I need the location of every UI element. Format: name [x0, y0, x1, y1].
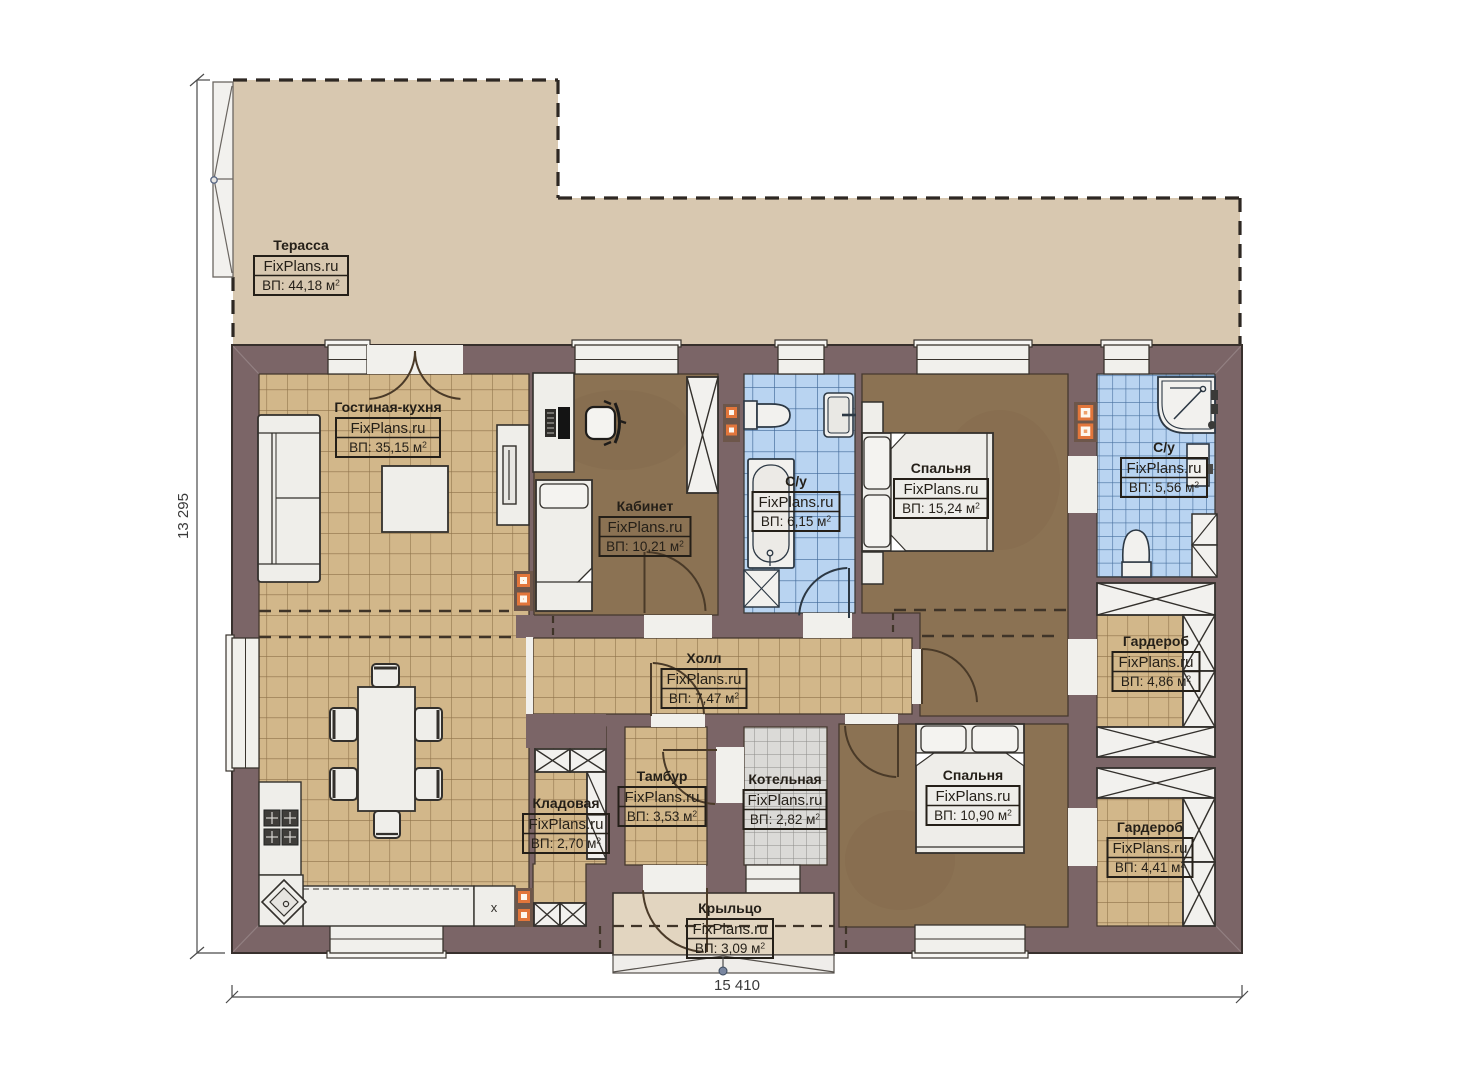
svg-text:FixPlans.ru: FixPlans.ru — [528, 816, 603, 833]
svg-text:Гардероб: Гардероб — [1123, 633, 1190, 649]
svg-text:ВП: 3,09 м2: ВП: 3,09 м2 — [695, 941, 766, 957]
svg-text:ВП: 3,53 м2: ВП: 3,53 м2 — [627, 809, 698, 825]
svg-text:FixPlans.ru: FixPlans.ru — [263, 258, 338, 275]
svg-text:ВП: 10,90 м2: ВП: 10,90 м2 — [934, 808, 1012, 824]
svg-text:FixPlans.ru: FixPlans.ru — [666, 671, 741, 688]
svg-text:ВП: 4,86 м2: ВП: 4,86 м2 — [1121, 674, 1192, 690]
svg-text:С/у: С/у — [1153, 439, 1175, 455]
svg-text:ВП: 5,56 м2: ВП: 5,56 м2 — [1129, 480, 1200, 496]
svg-text:Котельная: Котельная — [748, 771, 821, 787]
svg-text:Крыльцо: Крыльцо — [698, 900, 762, 916]
svg-text:Гардероб: Гардероб — [1117, 819, 1184, 835]
svg-text:ВП: 2,82 м2: ВП: 2,82 м2 — [750, 812, 821, 828]
svg-text:Спальня: Спальня — [943, 767, 1003, 783]
svg-text:FixPlans.ru: FixPlans.ru — [1126, 460, 1201, 477]
svg-text:FixPlans.ru: FixPlans.ru — [758, 494, 833, 511]
svg-text:ВП: 6,15 м2: ВП: 6,15 м2 — [761, 514, 832, 530]
svg-text:ВП: 2,70 м2: ВП: 2,70 м2 — [531, 836, 602, 852]
svg-text:x: x — [491, 900, 498, 915]
svg-text:ВП: 35,15 м2: ВП: 35,15 м2 — [349, 440, 427, 456]
svg-text:Кладовая: Кладовая — [532, 795, 599, 811]
svg-text:FixPlans.ru: FixPlans.ru — [350, 420, 425, 437]
svg-text:FixPlans.ru: FixPlans.ru — [903, 481, 978, 498]
svg-text:13 295: 13 295 — [175, 493, 192, 539]
svg-text:15 410: 15 410 — [714, 977, 760, 994]
svg-text:Холл: Холл — [686, 650, 721, 666]
svg-text:FixPlans.ru: FixPlans.ru — [747, 792, 822, 809]
svg-text:ВП: 7,47 м2: ВП: 7,47 м2 — [669, 691, 740, 707]
svg-text:ВП: 15,24 м2: ВП: 15,24 м2 — [902, 501, 980, 517]
svg-text:FixPlans.ru: FixPlans.ru — [692, 921, 767, 938]
svg-text:FixPlans.ru: FixPlans.ru — [1112, 840, 1187, 857]
svg-text:FixPlans.ru: FixPlans.ru — [935, 788, 1010, 805]
svg-text:ВП: 10,21 м2: ВП: 10,21 м2 — [606, 539, 684, 555]
svg-text:С/у: С/у — [785, 473, 807, 489]
svg-text:Гостиная-кухня: Гостиная-кухня — [334, 399, 441, 415]
svg-text:ВП: 4,41 м2: ВП: 4,41 м2 — [1115, 860, 1186, 876]
svg-text:FixPlans.ru: FixPlans.ru — [1118, 654, 1193, 671]
svg-text:Кабинет: Кабинет — [617, 498, 674, 514]
svg-text:Терасса: Терасса — [273, 237, 329, 253]
svg-text:ВП: 44,18 м2: ВП: 44,18 м2 — [262, 278, 340, 294]
svg-text:Тамбур: Тамбур — [637, 768, 688, 784]
svg-text:FixPlans.ru: FixPlans.ru — [607, 519, 682, 536]
svg-text:FixPlans.ru: FixPlans.ru — [624, 789, 699, 806]
svg-text:Спальня: Спальня — [911, 460, 971, 476]
